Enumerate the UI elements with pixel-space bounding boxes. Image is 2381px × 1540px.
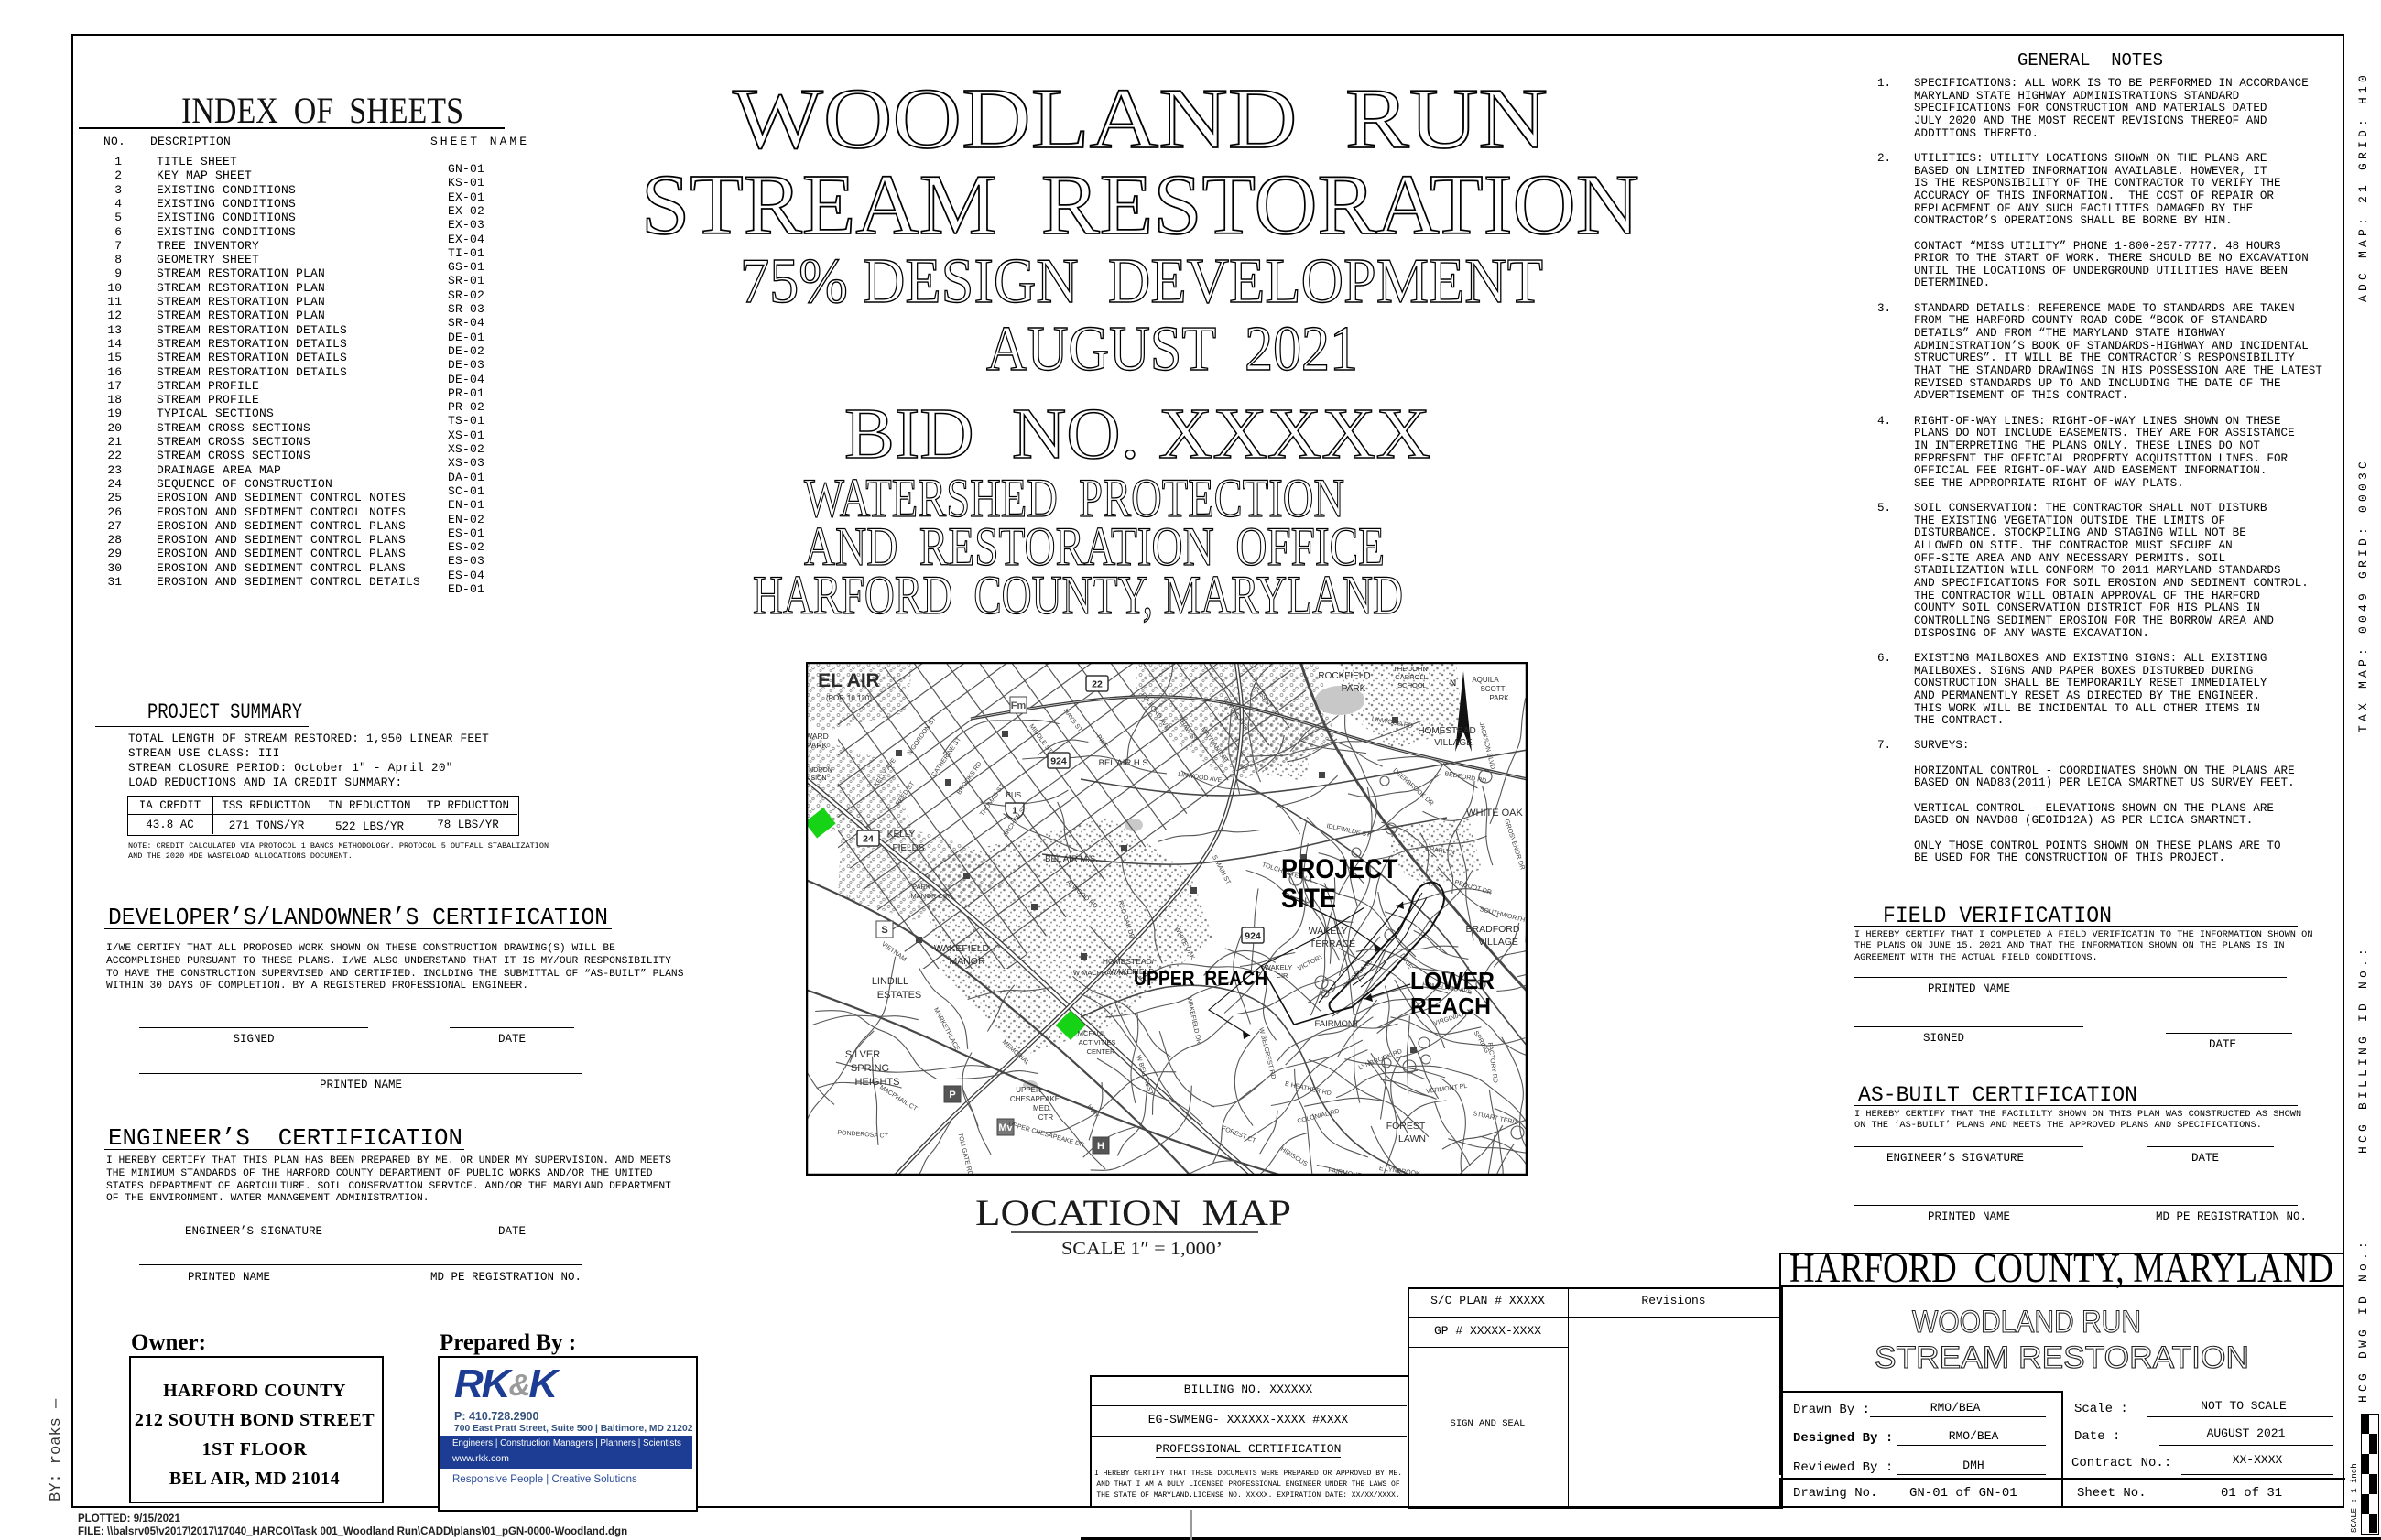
svg-text:924: 924: [1245, 931, 1261, 942]
svg-text:SION: SION: [810, 775, 826, 782]
svg-text:P: P: [949, 1090, 955, 1101]
svg-text:SPRING: SPRING: [851, 1063, 889, 1074]
svg-text:PEQUOT DR: PEQUOT DR: [1454, 879, 1493, 895]
svg-text:22: 22: [1092, 679, 1103, 690]
svg-text:SILVER: SILVER: [845, 1049, 880, 1060]
svg-text:VERMONT PL: VERMONT PL: [1426, 1083, 1468, 1095]
svg-text:PARK: PARK: [912, 883, 930, 891]
svg-text:LINDILL: LINDILL: [872, 976, 908, 987]
svg-text:N: N: [1450, 678, 1456, 689]
svg-text:924: 924: [1050, 756, 1067, 767]
svg-text:S: S: [881, 925, 887, 936]
svg-text:THE JOHN: THE JOHN: [1393, 665, 1428, 673]
svg-text:WAKELY: WAKELY: [1265, 963, 1292, 971]
svg-text:SCOTT: SCOTT: [1480, 685, 1505, 693]
svg-text:UPPER: UPPER: [1016, 1086, 1041, 1094]
svg-text:HOMESTEAD: HOMESTEAD: [1418, 726, 1475, 736]
svg-text:PARK: PARK: [1342, 684, 1366, 694]
svg-text:FIELDS: FIELDS: [892, 843, 924, 853]
svg-text:BROOKS RD: BROOKS RD: [956, 761, 984, 796]
svg-text:W MACPHAIL RD: W MACPHAIL RD: [1073, 969, 1129, 977]
svg-text:MACPHAIL CT: MACPHAIL CT: [878, 1084, 919, 1112]
svg-text:S MAIN ST: S MAIN ST: [1211, 854, 1232, 886]
svg-text:WAKEFIELD: WAKEFIELD: [934, 943, 990, 954]
svg-text:COLONIAL RD: COLONIAL RD: [1297, 1108, 1340, 1124]
svg-text:LINWOOD AVE: LINWOOD AVE: [1178, 772, 1223, 785]
svg-text:FOREST: FOREST: [1386, 1121, 1426, 1132]
svg-text:VILLAGE: VILLAGE: [1434, 738, 1473, 748]
svg-text:UPPER CHESAPEAKE DR: UPPER CHESAPEAKE DR: [1007, 1121, 1084, 1148]
svg-text:MANOR CIR: MANOR CIR: [911, 892, 951, 900]
svg-text:NDRON: NDRON: [809, 767, 832, 774]
svg-text:SCHOOL: SCHOOL: [1397, 681, 1427, 689]
svg-text:WAKELY: WAKELY: [1309, 926, 1348, 937]
svg-text:ESTATES: ESTATES: [877, 990, 922, 1001]
svg-text:CARROLL: CARROLL: [1395, 673, 1427, 681]
svg-text:AQUILA: AQUILA: [1472, 676, 1499, 684]
svg-text:PONDEROSA CT: PONDEROSA CT: [837, 1130, 889, 1140]
svg-text:MANOR: MANOR: [949, 956, 985, 967]
svg-text:(POP. 10,120): (POP. 10,120): [826, 694, 872, 702]
svg-text:VICTORY: VICTORY: [1297, 953, 1325, 972]
svg-text:EL AIR: EL AIR: [818, 670, 880, 691]
svg-text:ACTIVITIES: ACTIVITIES: [1079, 1038, 1116, 1047]
svg-text:REACH: REACH: [1410, 992, 1491, 1020]
svg-text:WARD: WARD: [806, 732, 829, 741]
svg-text:ROCKFIELD: ROCKFIELD: [1318, 671, 1370, 681]
svg-text:TOLLGATE RD: TOLLGATE RD: [956, 1133, 973, 1176]
svg-text:W BELCREST RD: W BELCREST RD: [1257, 1027, 1277, 1079]
svg-text:MCFAUL: MCFAUL: [1078, 1029, 1105, 1037]
svg-text:BRADFORD: BRADFORD: [1466, 924, 1520, 935]
svg-text:H: H: [1097, 1141, 1104, 1152]
svg-text:CTR: CTR: [1038, 1113, 1054, 1122]
svg-text:CHESAPEAKE: CHESAPEAKE: [1010, 1095, 1060, 1103]
svg-text:PARK: PARK: [1489, 694, 1509, 702]
svg-text:THOMAS ST: THOMAS ST: [979, 783, 1006, 818]
svg-text:LAWN: LAWN: [1398, 1133, 1426, 1144]
svg-text:LOWER: LOWER: [1410, 967, 1495, 994]
svg-text:VIETNAM: VIETNAM: [880, 941, 907, 963]
svg-text:KELLY: KELLY: [887, 830, 916, 840]
svg-text:BUS.: BUS.: [1006, 791, 1024, 799]
svg-text:WAKEFIELD DR: WAKEFIELD DR: [1186, 996, 1202, 1045]
svg-text:MED.: MED.: [1033, 1104, 1051, 1112]
svg-text:SITE: SITE: [1281, 884, 1336, 914]
svg-text:TERRACE: TERRACE: [1310, 938, 1355, 949]
svg-text:24: 24: [863, 834, 874, 845]
svg-text:W BELCREST: W BELCREST: [1135, 1055, 1154, 1097]
svg-text:N GORDON ST: N GORDON ST: [907, 715, 938, 756]
svg-text:Fm: Fm: [1011, 700, 1027, 711]
svg-text:HWY: HWY: [1085, 1103, 1100, 1119]
svg-text:PARK: PARK: [807, 741, 828, 750]
svg-text:HEIGHTS: HEIGHTS: [855, 1077, 900, 1088]
svg-text:MIDDLE ST: MIDDLE ST: [1027, 723, 1053, 755]
svg-text:CIR: CIR: [1277, 971, 1289, 980]
svg-text:VILLAGE: VILLAGE: [1478, 937, 1518, 948]
svg-text:SOUTHWORTH: SOUTHWORTH: [1479, 906, 1526, 924]
svg-text:E HEATHER RD: E HEATHER RD: [1284, 1081, 1332, 1098]
svg-text:HOMESTEAD/: HOMESTEAD/: [1103, 957, 1155, 966]
svg-text:FAIRMONT: FAIRMONT: [1314, 1019, 1359, 1029]
svg-text:CENTER: CENTER: [1087, 1047, 1115, 1056]
svg-text:BEL AIR M.S.: BEL AIR M.S.: [1045, 854, 1098, 864]
svg-text:HIBISCUS: HIBISCUS: [1279, 1146, 1309, 1168]
svg-text:GROSVENOR DR: GROSVENOR DR: [1503, 819, 1525, 871]
svg-text:PROJECT: PROJECT: [1281, 854, 1397, 884]
svg-text:FOREST CT: FOREST CT: [1221, 1125, 1257, 1145]
svg-text:JACKSON BLVD: JACKSON BLVD: [1478, 721, 1496, 770]
svg-text:CATHERINE ST: CATHERINE ST: [930, 736, 962, 778]
svg-text:BEL AIR H.S.: BEL AIR H.S.: [1099, 758, 1151, 768]
svg-text:WHITE OAK: WHITE OAK: [1466, 808, 1523, 819]
svg-text:STUART TERR: STUART TERR: [1473, 1111, 1517, 1126]
svg-text:UPPER REACH: UPPER REACH: [1134, 967, 1267, 990]
